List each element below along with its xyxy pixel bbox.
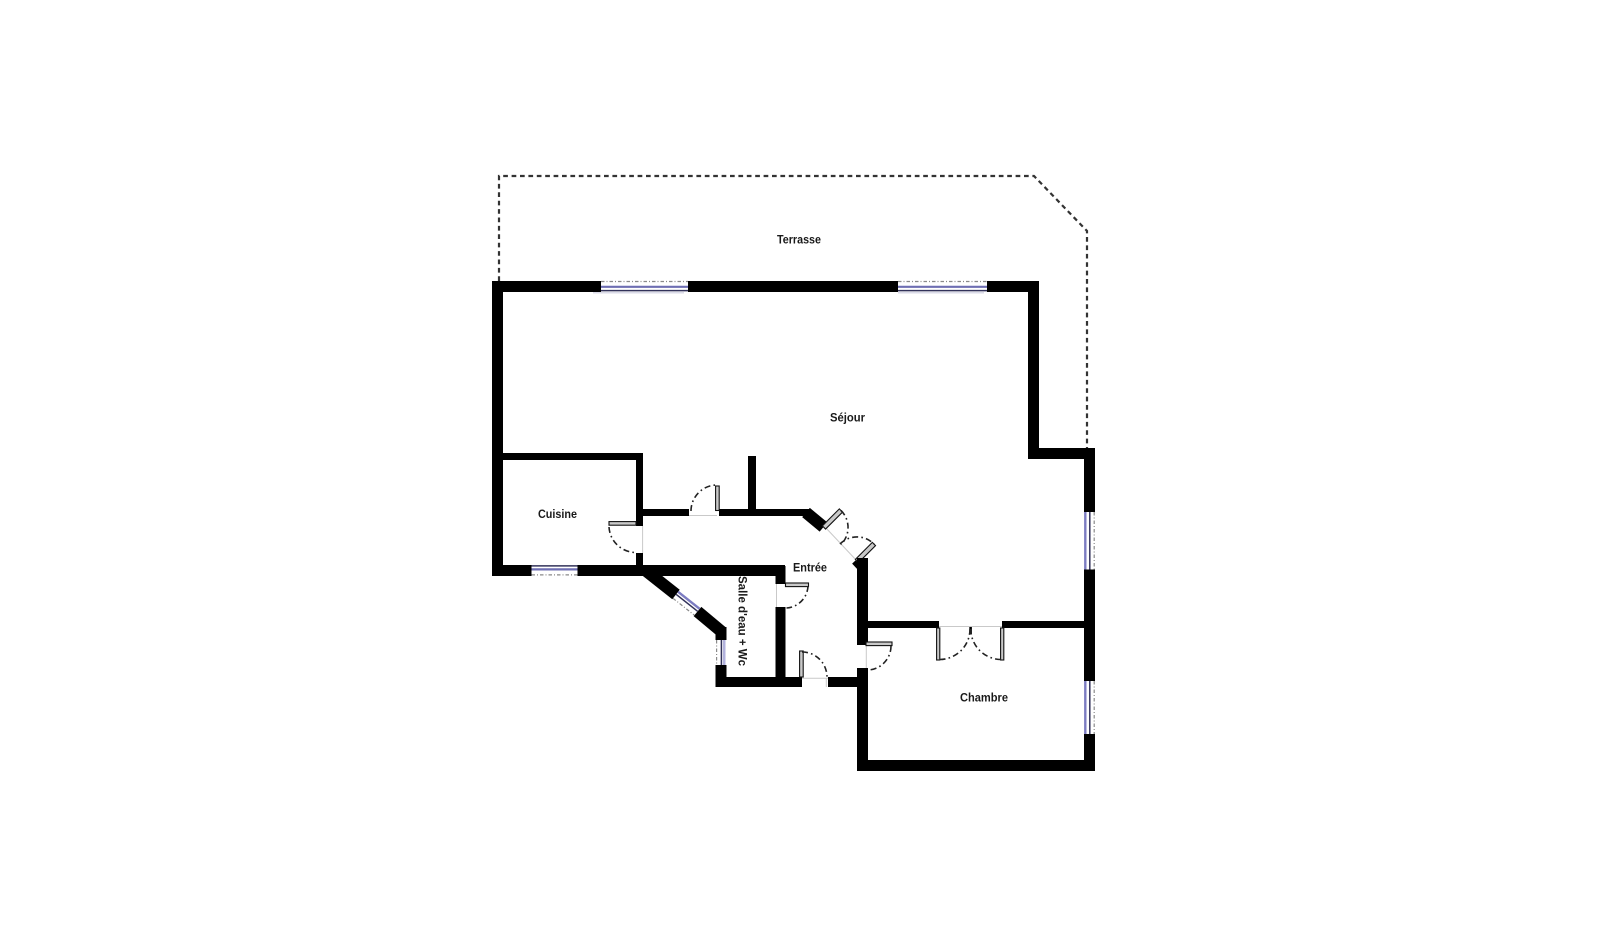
svg-text:Séjour: Séjour (830, 411, 865, 425)
svg-text:Salle d'eau + Wc: Salle d'eau + Wc (736, 576, 750, 666)
svg-text:Terrasse: Terrasse (777, 233, 821, 247)
svg-text:Entrée: Entrée (793, 561, 827, 575)
svg-text:Chambre: Chambre (960, 691, 1008, 705)
svg-text:Cuisine: Cuisine (538, 507, 577, 521)
